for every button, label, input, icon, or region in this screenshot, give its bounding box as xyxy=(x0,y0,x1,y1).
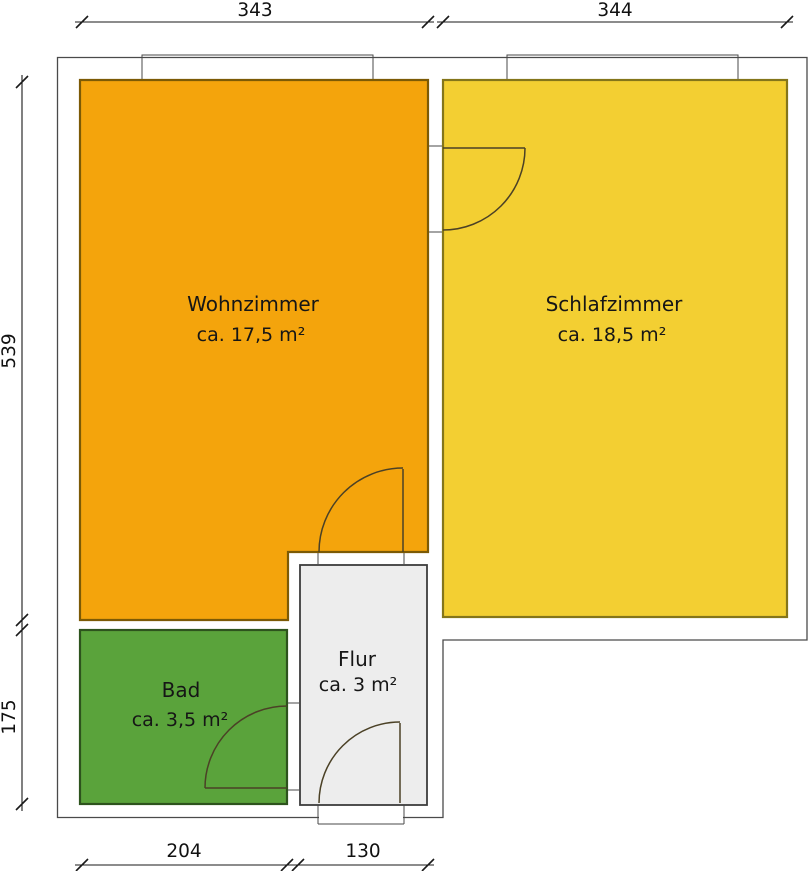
room-area: ca. 3 m² xyxy=(319,674,397,696)
dimension-label: 344 xyxy=(597,0,632,21)
dimension-label: 539 xyxy=(0,333,20,368)
dimension-label: 175 xyxy=(0,699,20,734)
dimension-left-wohnzimmer: 539 xyxy=(0,75,28,627)
dimension-top-schlafzimmer: 344 xyxy=(437,0,793,28)
room-name: Flur xyxy=(338,647,377,671)
dimension-top-wohnzimmer: 343 xyxy=(75,0,434,28)
dimension-label: 343 xyxy=(237,0,272,21)
dimension-bottom-bad: 204 xyxy=(75,841,293,871)
door-threshold xyxy=(319,807,403,824)
room-area: ca. 18,5 m² xyxy=(558,324,667,346)
door-jamb-lines xyxy=(288,703,299,790)
dimension-left-bad: 175 xyxy=(0,623,28,811)
window-schlafzimmer xyxy=(507,55,738,80)
room-name: Schlafzimmer xyxy=(546,292,684,316)
floor-plan-drawing: 343 344 539 175 204 130 Wohnzimmer ca. 1… xyxy=(0,0,812,871)
floor-plan-canvas: 343 344 539 175 204 130 Wohnzimmer ca. 1… xyxy=(0,0,812,871)
room-name: Bad xyxy=(162,678,201,702)
room-area: ca. 3,5 m² xyxy=(132,709,229,731)
room-schlafzimmer xyxy=(443,80,787,617)
door-jamb-lines xyxy=(318,553,404,564)
door-jamb-lines xyxy=(429,146,442,232)
window-wohnzimmer xyxy=(142,55,373,80)
room-name: Wohnzimmer xyxy=(187,292,320,316)
room-wohnzimmer xyxy=(80,80,428,620)
dimension-label: 204 xyxy=(166,841,201,862)
dimension-bottom-flur: 130 xyxy=(292,841,434,871)
dimension-label: 130 xyxy=(345,841,380,862)
room-area: ca. 17,5 m² xyxy=(197,324,306,346)
